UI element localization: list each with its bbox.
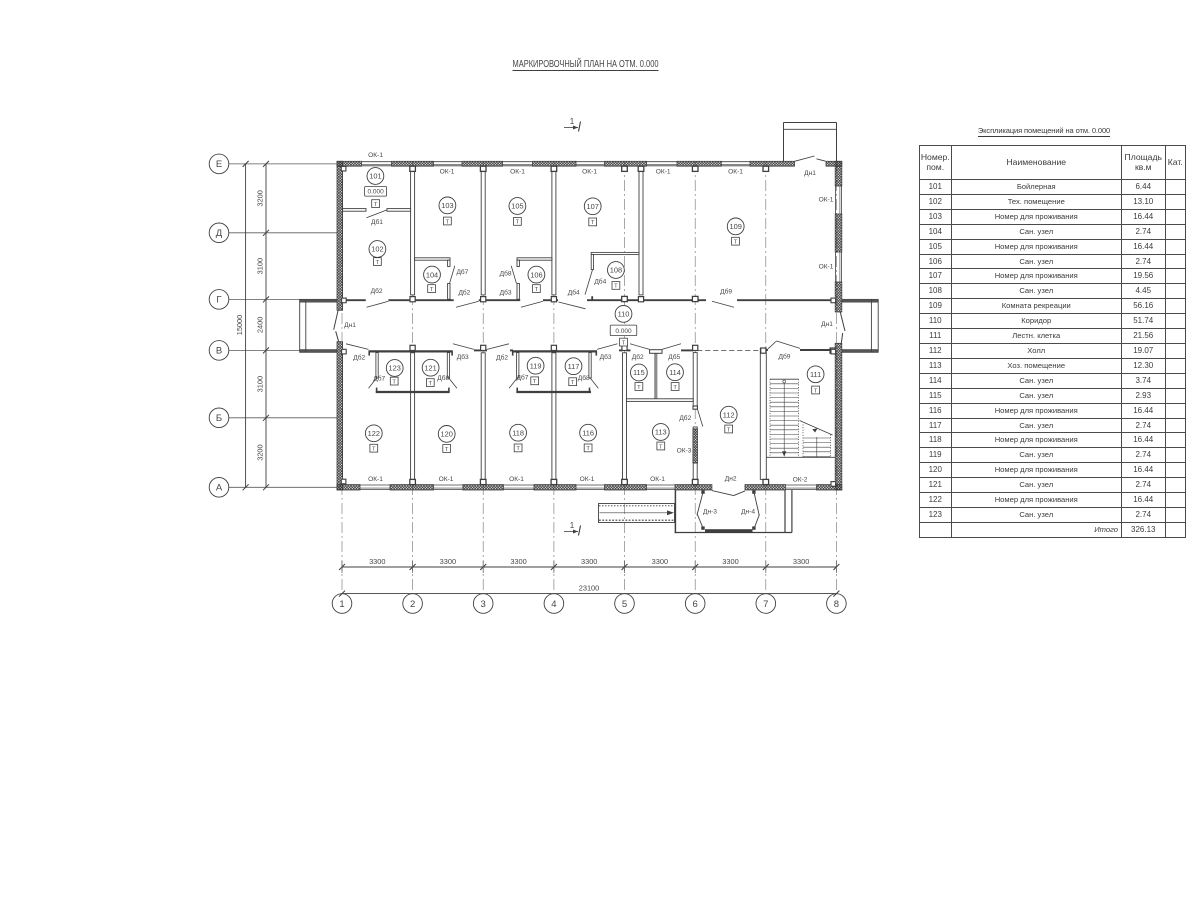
svg-text:Г: Г xyxy=(216,295,221,306)
svg-text:Дб9: Дб9 xyxy=(720,288,732,296)
svg-text:5: 5 xyxy=(622,599,627,610)
svg-text:Т: Т xyxy=(571,380,575,386)
svg-text:Дб1: Дб1 xyxy=(371,218,383,226)
svg-text:Т: Т xyxy=(659,444,663,450)
svg-text:Дн1: Дн1 xyxy=(344,322,356,329)
svg-text:Т: Т xyxy=(429,381,433,387)
svg-text:Т: Т xyxy=(637,385,641,391)
svg-text:ОК-1: ОК-1 xyxy=(510,169,525,176)
svg-text:15000: 15000 xyxy=(235,315,244,336)
svg-text:А: А xyxy=(216,483,223,494)
svg-text:ОК-1: ОК-1 xyxy=(656,169,671,176)
svg-text:Т: Т xyxy=(727,427,731,433)
svg-text:Т: Т xyxy=(533,379,537,385)
svg-text:Дб2: Дб2 xyxy=(496,354,508,362)
svg-text:ОК-1: ОК-1 xyxy=(440,169,455,176)
svg-text:МАРКИРОВОЧНЫЙ ПЛАН НА ОТМ. 0.0: МАРКИРОВОЧНЫЙ ПЛАН НА ОТМ. 0.000 xyxy=(513,57,659,70)
svg-text:Т: Т xyxy=(372,447,376,453)
svg-text:105: 105 xyxy=(511,202,523,211)
svg-text:Дн-4: Дн-4 xyxy=(741,508,755,515)
svg-text:Дб7: Дб7 xyxy=(456,268,468,276)
svg-text:Т: Т xyxy=(614,284,618,290)
svg-text:2: 2 xyxy=(410,599,415,610)
svg-text:3300: 3300 xyxy=(510,557,526,566)
svg-text:Дб3: Дб3 xyxy=(457,353,469,361)
svg-text:121: 121 xyxy=(424,363,436,372)
svg-text:Т: Т xyxy=(374,202,378,208)
svg-text:Т: Т xyxy=(430,287,434,293)
svg-text:ОК-1: ОК-1 xyxy=(728,169,743,176)
svg-text:108: 108 xyxy=(610,266,622,275)
svg-text:Дб4: Дб4 xyxy=(594,277,606,285)
svg-text:3300: 3300 xyxy=(369,557,385,566)
svg-text:Дб8: Дб8 xyxy=(578,374,590,382)
svg-text:ОК-3: ОК-3 xyxy=(677,448,692,455)
svg-text:115: 115 xyxy=(633,368,645,377)
svg-text:ОК-1: ОК-1 xyxy=(368,152,383,159)
svg-text:Дб2: Дб2 xyxy=(371,287,383,295)
svg-text:122: 122 xyxy=(368,429,380,438)
svg-text:0.000: 0.000 xyxy=(615,328,632,335)
svg-text:Дб8: Дб8 xyxy=(437,374,449,382)
svg-text:103: 103 xyxy=(441,201,453,210)
svg-text:3100: 3100 xyxy=(256,258,265,274)
svg-text:Т: Т xyxy=(734,240,738,246)
svg-text:Дб2: Дб2 xyxy=(632,353,644,361)
svg-text:Дб2: Дб2 xyxy=(353,354,365,362)
svg-text:123: 123 xyxy=(389,364,401,373)
svg-text:3: 3 xyxy=(481,599,486,610)
svg-text:Т: Т xyxy=(445,447,449,453)
svg-text:Т: Т xyxy=(814,388,818,394)
svg-text:106: 106 xyxy=(530,270,542,279)
svg-text:ОК-1: ОК-1 xyxy=(650,476,665,483)
svg-text:112: 112 xyxy=(723,410,735,419)
svg-text:3300: 3300 xyxy=(722,557,738,566)
svg-text:113: 113 xyxy=(655,428,667,437)
svg-text:8: 8 xyxy=(834,599,839,610)
svg-text:Дб9: Дб9 xyxy=(779,353,791,361)
svg-text:ОК-2: ОК-2 xyxy=(793,477,808,484)
svg-text:6: 6 xyxy=(693,599,698,610)
svg-text:4: 4 xyxy=(551,599,556,610)
svg-text:Дн2: Дн2 xyxy=(725,476,737,483)
svg-text:117: 117 xyxy=(568,362,580,371)
svg-text:1: 1 xyxy=(570,521,575,530)
svg-text:1: 1 xyxy=(570,117,575,126)
svg-text:Дб8: Дб8 xyxy=(500,270,512,278)
svg-text:Т: Т xyxy=(392,379,396,385)
svg-text:118: 118 xyxy=(512,428,524,437)
svg-text:7: 7 xyxy=(763,599,768,610)
svg-text:3300: 3300 xyxy=(581,557,597,566)
svg-text:ОК-1: ОК-1 xyxy=(509,476,524,483)
svg-text:102: 102 xyxy=(371,245,383,254)
svg-text:Т: Т xyxy=(622,340,626,346)
svg-text:Дб4: Дб4 xyxy=(568,289,580,297)
svg-text:Т: Т xyxy=(446,219,450,225)
svg-text:3200: 3200 xyxy=(256,444,265,460)
svg-text:Т: Т xyxy=(516,446,520,452)
svg-text:Дн-3: Дн-3 xyxy=(703,508,717,515)
svg-text:Дб2: Дб2 xyxy=(679,414,691,422)
svg-text:ОК-1: ОК-1 xyxy=(439,476,454,483)
svg-text:ОК-1: ОК-1 xyxy=(582,169,597,176)
svg-text:ОК-1: ОК-1 xyxy=(819,264,834,271)
svg-text:Дб3: Дб3 xyxy=(500,289,512,297)
svg-text:0.000: 0.000 xyxy=(367,189,384,196)
svg-text:Дб2: Дб2 xyxy=(458,289,470,297)
svg-text:Дб7: Дб7 xyxy=(373,374,385,382)
svg-text:109: 109 xyxy=(730,222,742,231)
svg-text:111: 111 xyxy=(810,370,821,379)
svg-text:ОК-1: ОК-1 xyxy=(819,197,834,204)
svg-text:107: 107 xyxy=(587,202,599,211)
svg-text:Дб7: Дб7 xyxy=(517,374,529,382)
svg-text:Т: Т xyxy=(376,260,380,266)
svg-text:Т: Т xyxy=(586,446,590,452)
svg-text:Т: Т xyxy=(591,220,595,226)
svg-text:3300: 3300 xyxy=(652,557,668,566)
svg-text:Дн1: Дн1 xyxy=(821,321,833,328)
svg-text:2400: 2400 xyxy=(256,317,265,333)
svg-text:3300: 3300 xyxy=(440,557,456,566)
svg-text:1: 1 xyxy=(339,599,344,610)
svg-text:3100: 3100 xyxy=(256,376,265,392)
svg-text:ОК-1: ОК-1 xyxy=(368,476,383,483)
svg-text:23100: 23100 xyxy=(579,584,600,593)
svg-text:В: В xyxy=(216,346,222,357)
svg-text:ОК-1: ОК-1 xyxy=(580,476,595,483)
svg-text:Дб5: Дб5 xyxy=(668,353,680,361)
svg-text:Дб3: Дб3 xyxy=(600,353,612,361)
svg-text:120: 120 xyxy=(441,430,453,439)
svg-text:110: 110 xyxy=(618,310,630,319)
svg-text:3200: 3200 xyxy=(256,190,265,206)
svg-text:Е: Е xyxy=(216,159,222,170)
svg-text:Т: Т xyxy=(535,287,539,293)
svg-text:Дн1: Дн1 xyxy=(804,170,816,177)
svg-text:3300: 3300 xyxy=(793,557,809,566)
svg-text:Т: Т xyxy=(673,385,677,391)
svg-text:101: 101 xyxy=(369,172,381,181)
svg-text:104: 104 xyxy=(426,270,438,279)
svg-text:Д: Д xyxy=(216,228,223,239)
svg-text:119: 119 xyxy=(530,361,542,370)
svg-text:116: 116 xyxy=(582,428,594,437)
svg-text:Б: Б xyxy=(216,413,222,424)
svg-text:114: 114 xyxy=(669,368,681,377)
svg-text:Т: Т xyxy=(516,220,520,226)
